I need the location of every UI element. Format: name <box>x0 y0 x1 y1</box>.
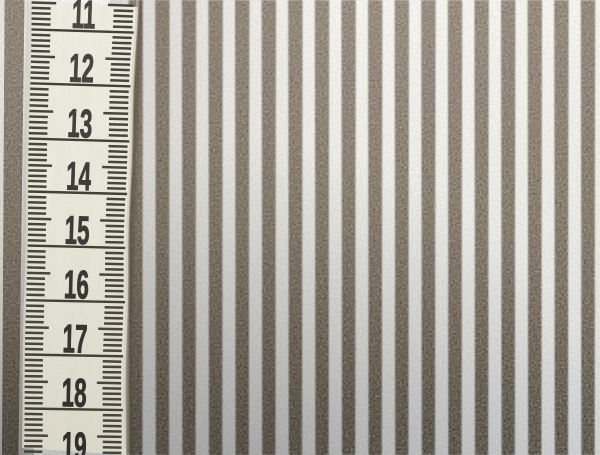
svg-text:11: 11 <box>71 0 96 37</box>
svg-text:12: 12 <box>68 46 94 91</box>
svg-text:17: 17 <box>62 316 88 361</box>
svg-text:14: 14 <box>66 154 92 199</box>
svg-text:16: 16 <box>63 262 89 307</box>
svg-text:18: 18 <box>61 370 87 415</box>
svg-text:19: 19 <box>61 424 87 455</box>
svg-text:15: 15 <box>64 208 90 253</box>
svg-text:13: 13 <box>67 101 93 146</box>
